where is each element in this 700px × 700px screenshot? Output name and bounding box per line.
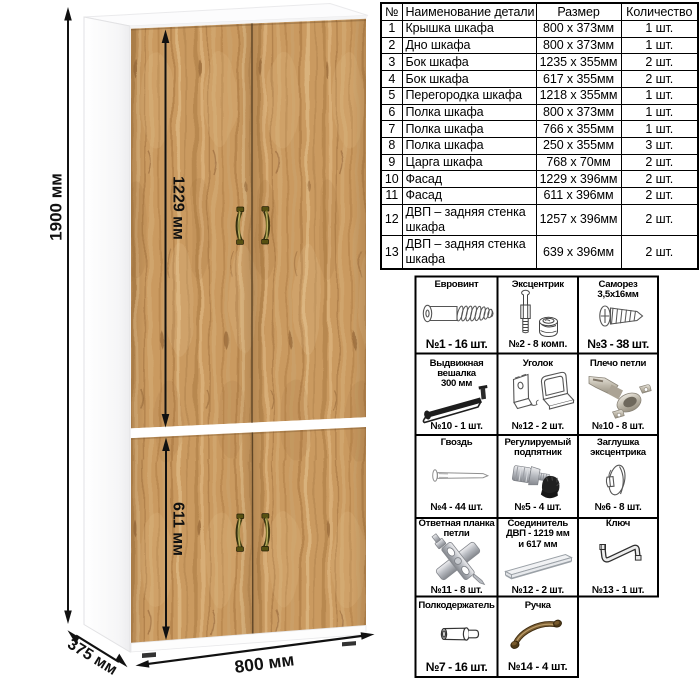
svg-text:611 мм: 611 мм [169,502,186,556]
svg-text:1229 мм: 1229 мм [169,176,186,240]
svg-text:1900 мм: 1900 мм [46,173,65,241]
svg-text:800 мм: 800 мм [233,649,295,677]
